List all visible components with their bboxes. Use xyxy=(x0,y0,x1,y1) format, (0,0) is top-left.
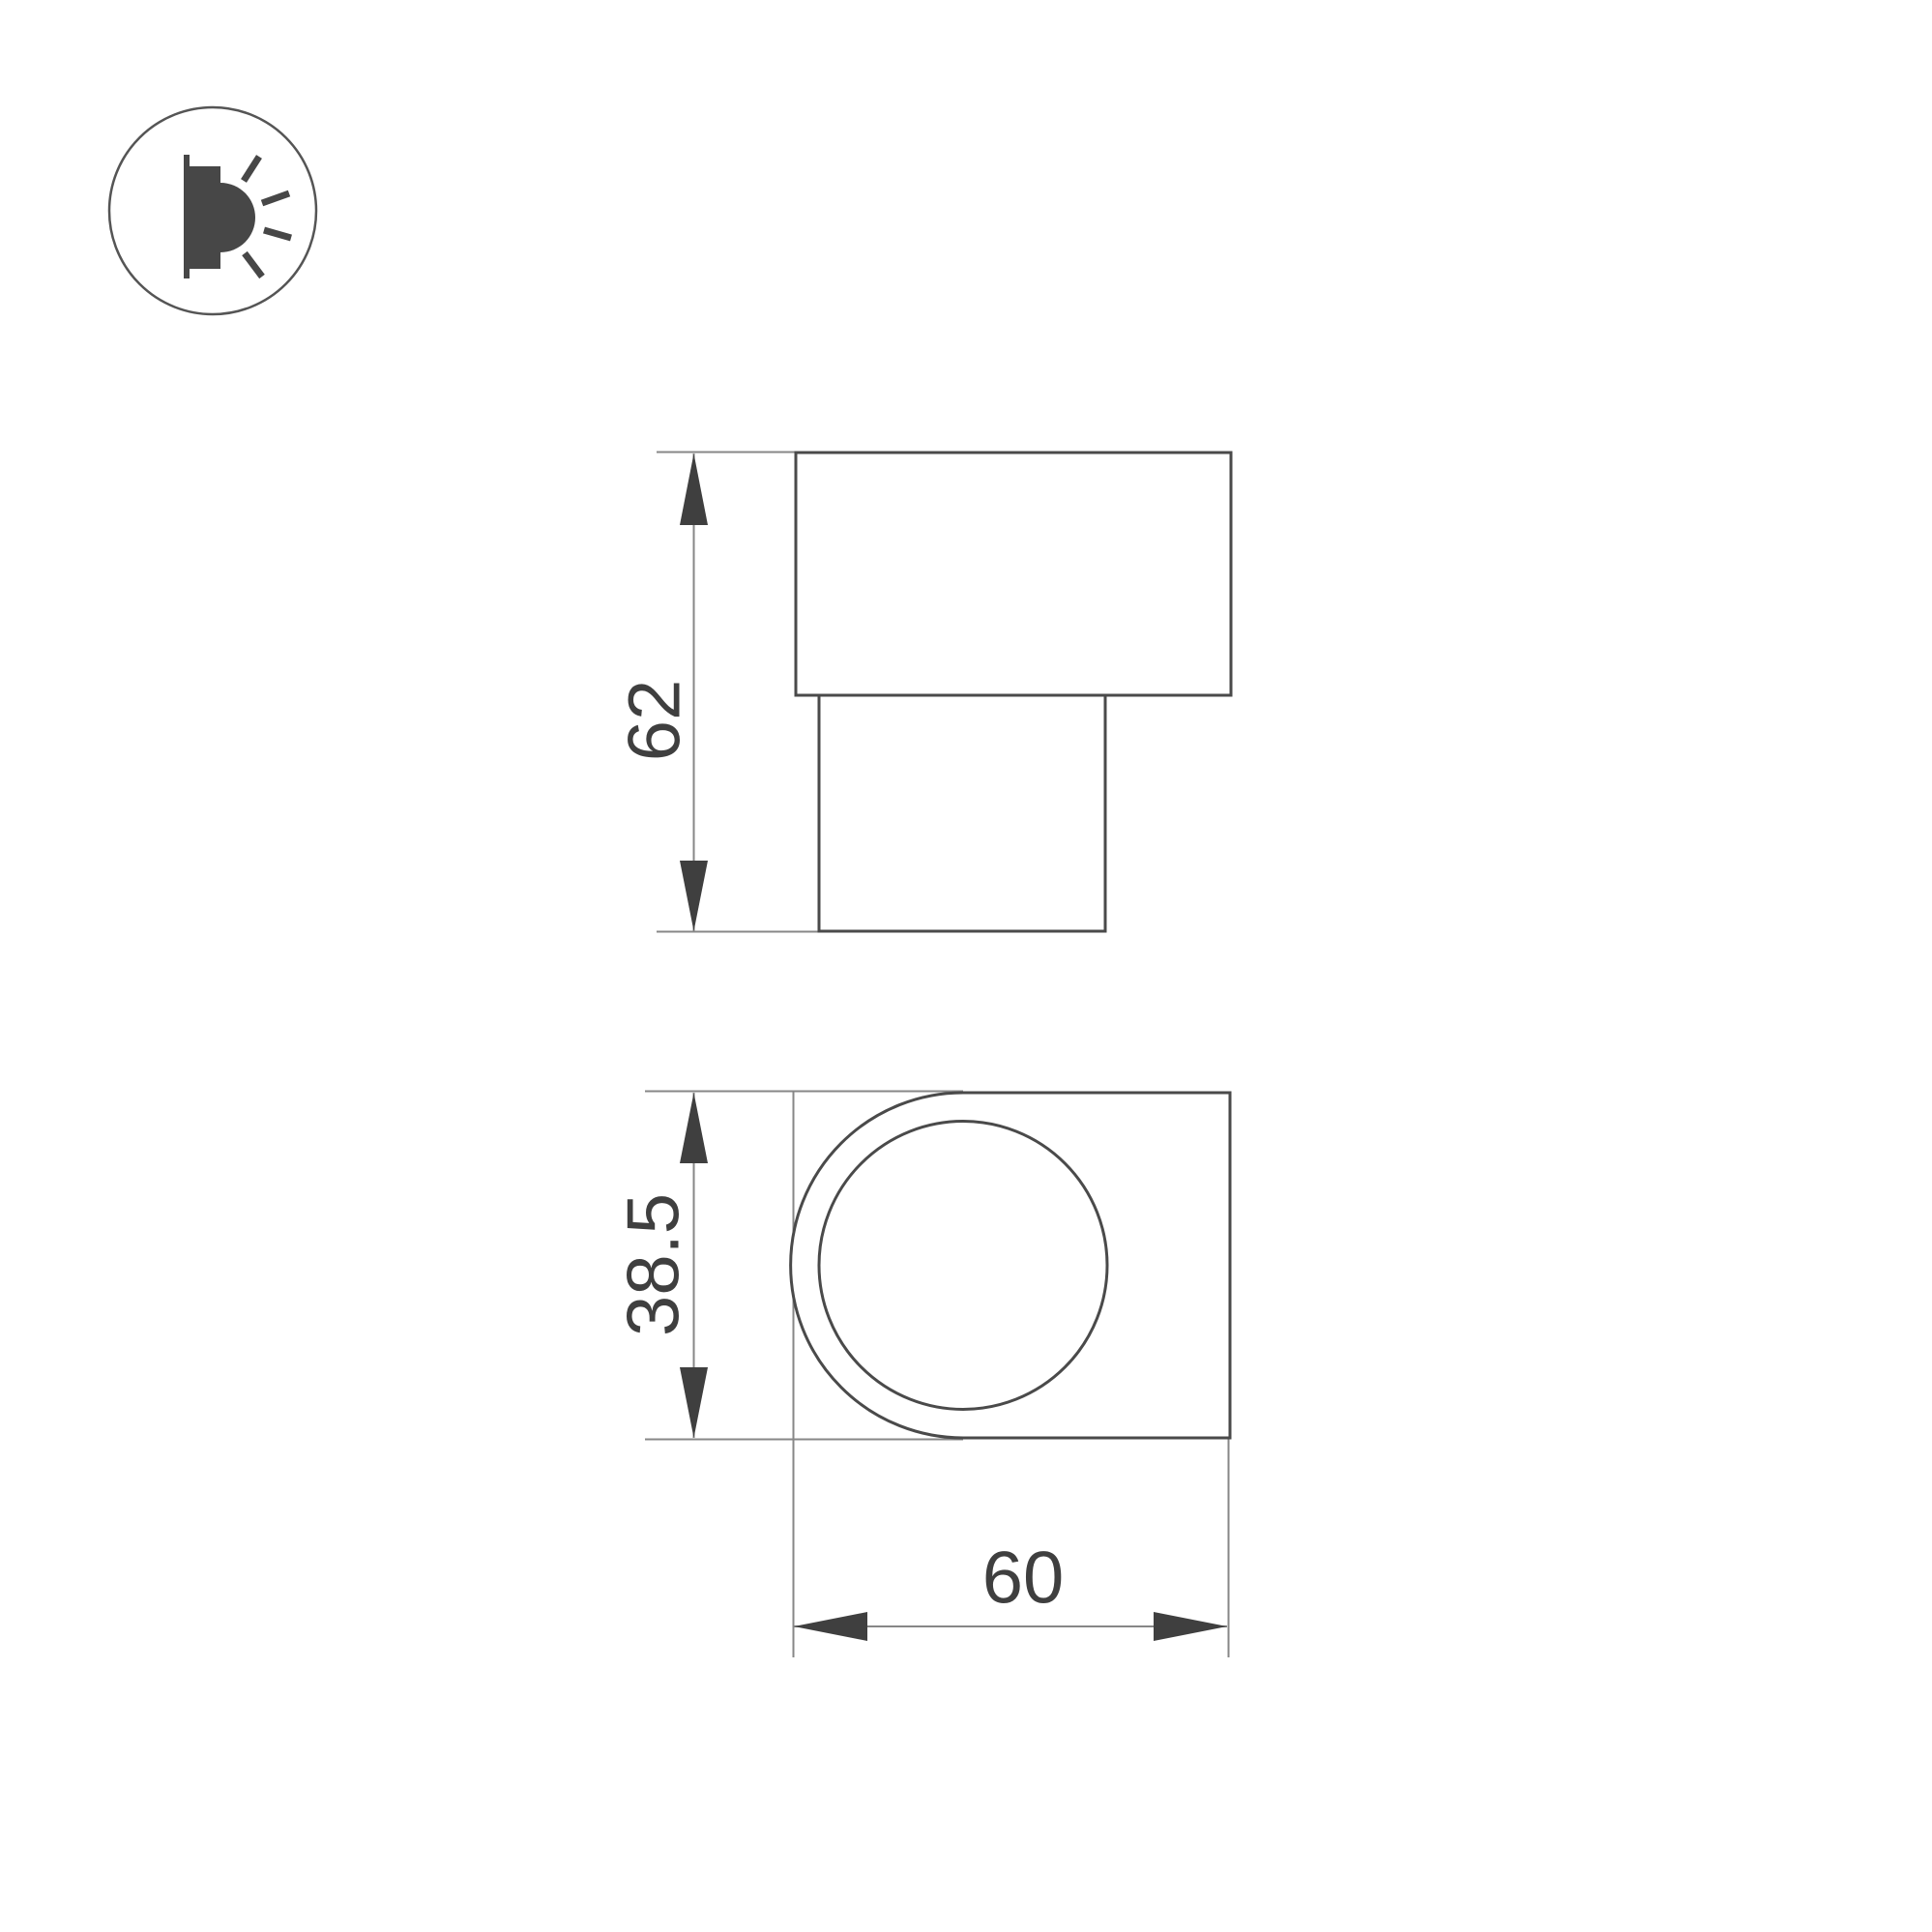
dimension-label-height-front: 38.5 xyxy=(613,1193,695,1336)
wall-lamp-icon xyxy=(109,107,316,314)
side-view-body-rect xyxy=(819,695,1105,931)
dimension-arrow-up xyxy=(680,454,708,525)
dimension-label-height-side: 62 xyxy=(614,680,696,762)
dimension-arrow-down xyxy=(680,1367,708,1438)
dimension-arrow-right xyxy=(1154,1612,1227,1641)
side-view: 62 xyxy=(614,453,1232,932)
drawing-page: 62 38.5 60 xyxy=(0,0,1932,1932)
dimension-arrow-up xyxy=(680,1093,708,1163)
dimension-arrow-down xyxy=(680,861,708,931)
dimension-label-width-front: 60 xyxy=(982,1537,1065,1620)
side-view-head-rect xyxy=(796,453,1231,695)
icon-lamp-body xyxy=(190,166,220,269)
dimension-arrow-left xyxy=(794,1612,867,1641)
technical-drawing: 62 38.5 60 xyxy=(0,0,1932,1932)
front-view: 38.5 60 xyxy=(613,1091,1231,1657)
front-view-lens-circle xyxy=(819,1122,1107,1410)
icon-wall-line xyxy=(184,155,190,278)
